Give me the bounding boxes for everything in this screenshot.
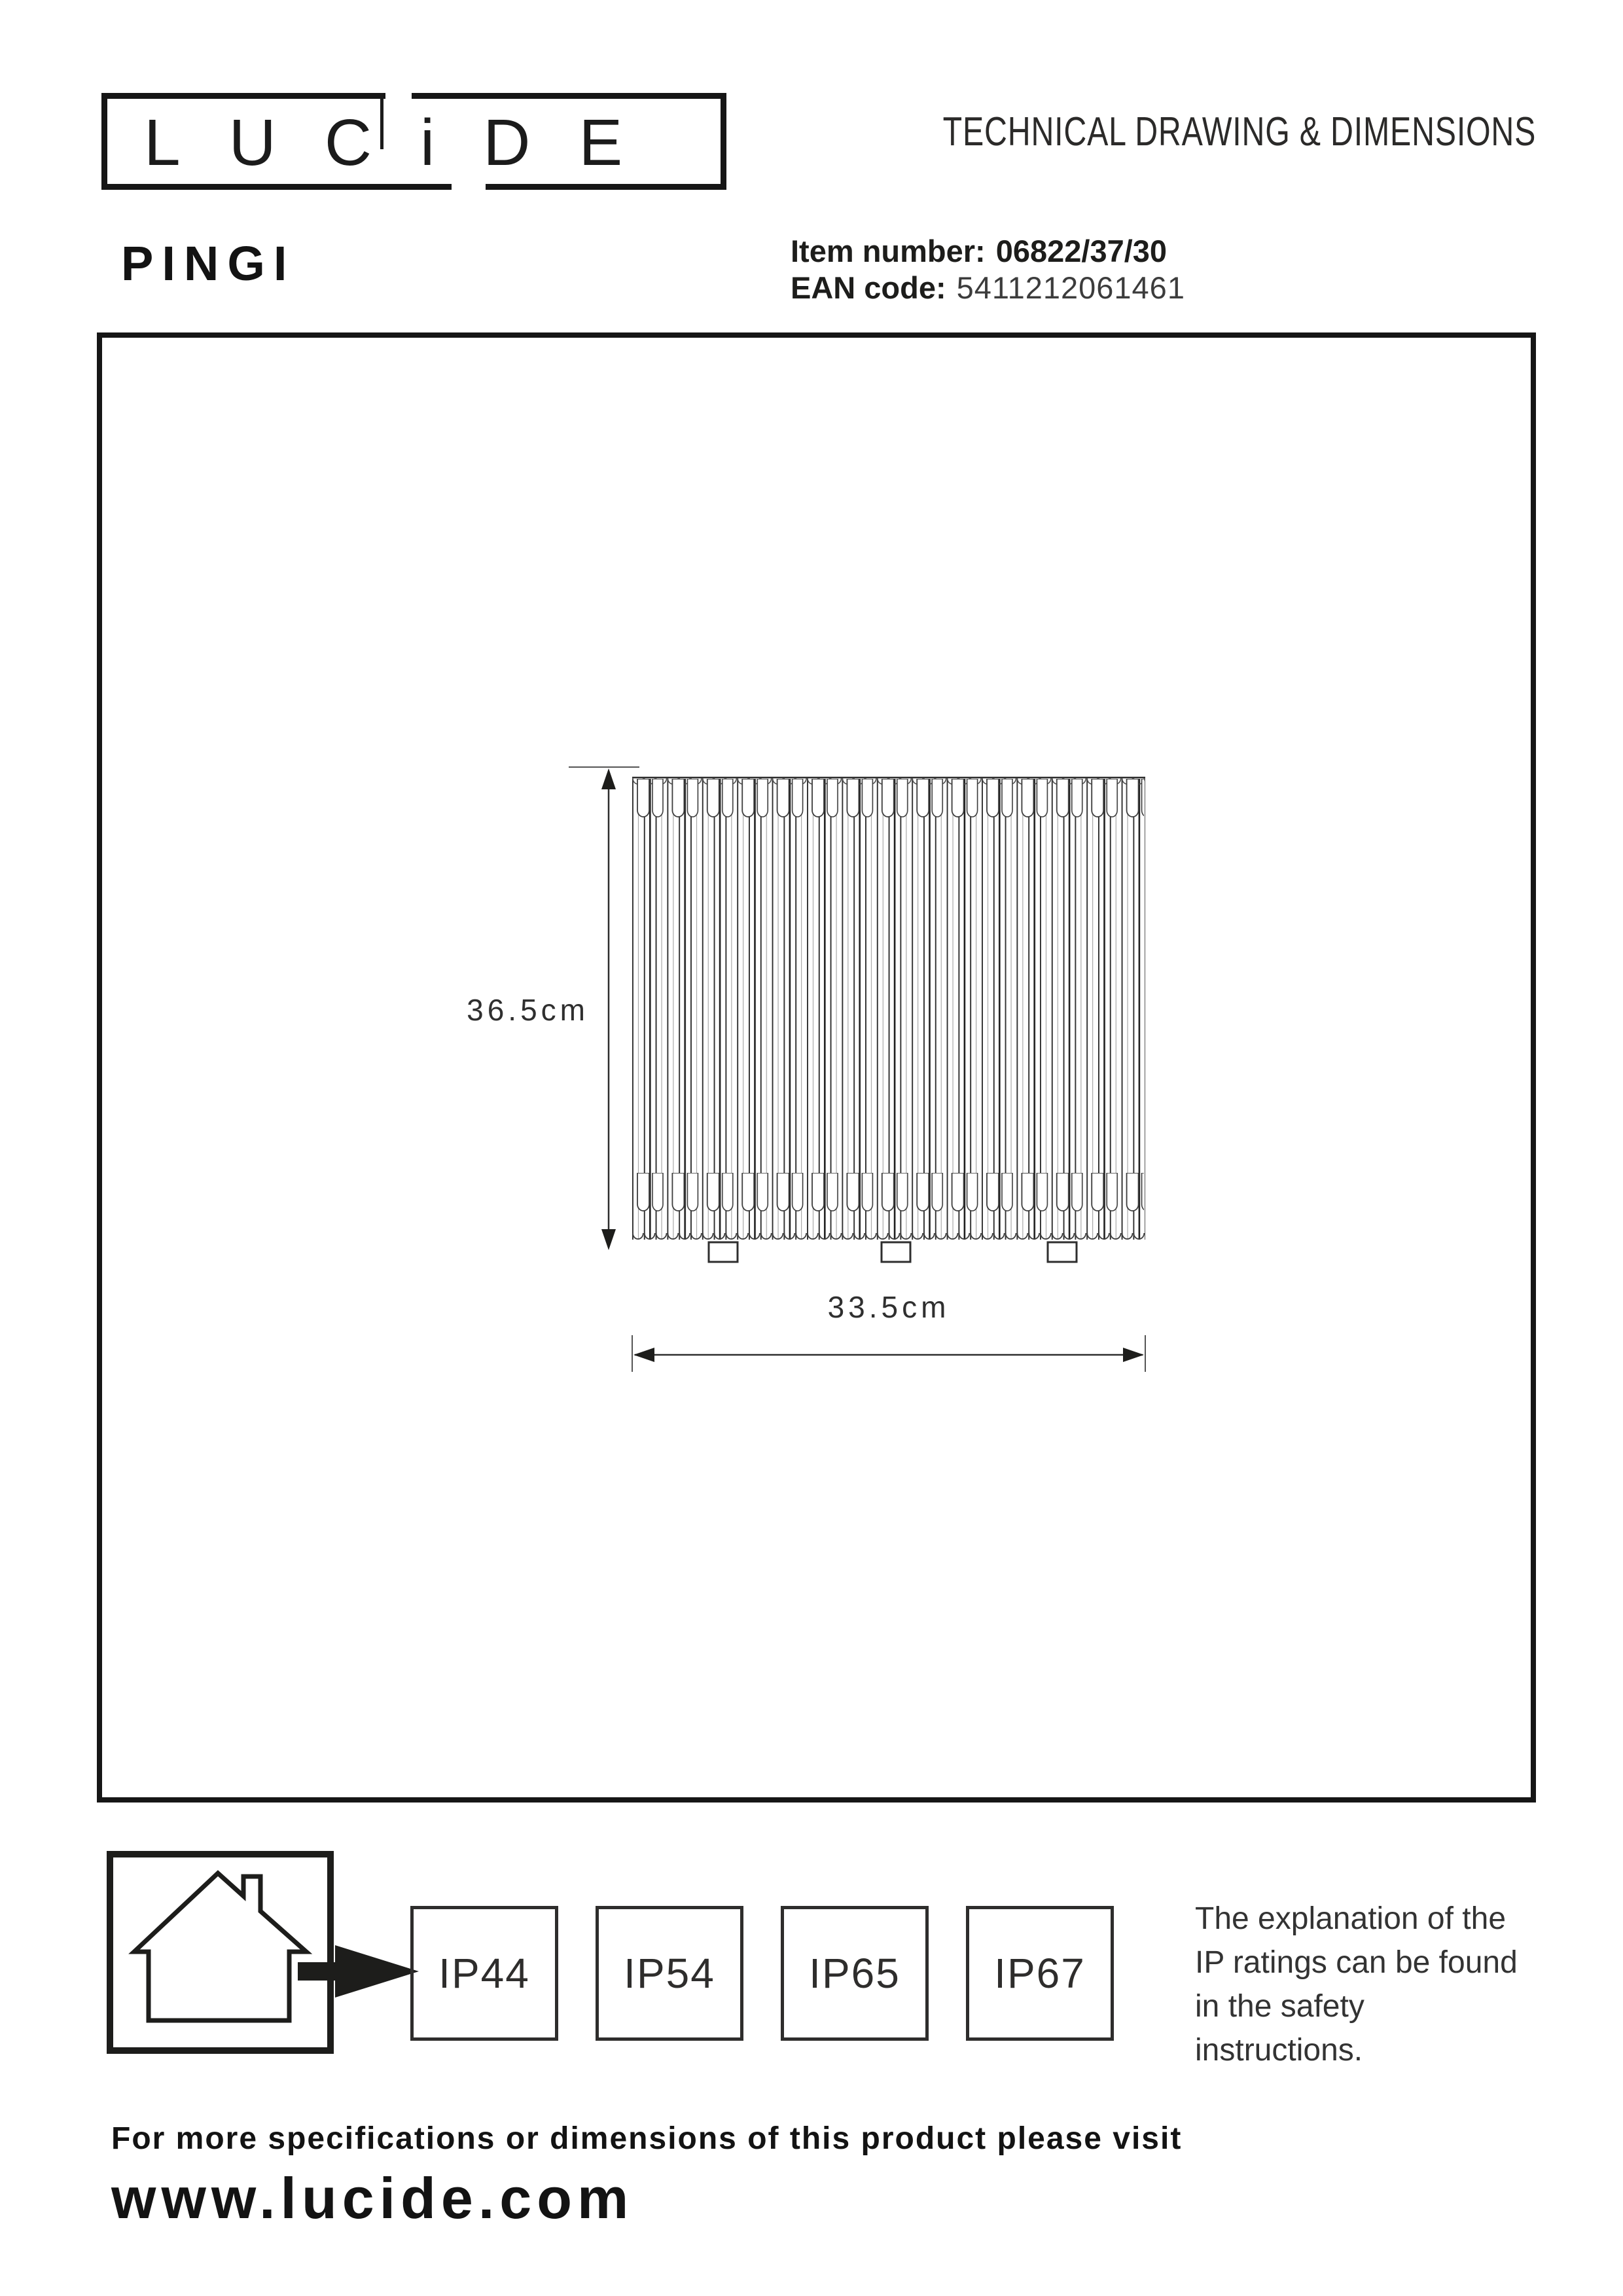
height-dimension-label: 36.5cm [412,992,589,1028]
ip-rating-badge: IP67 [966,1906,1114,2041]
item-number-label: Item number: [791,234,986,268]
ean-line: EAN code:5411212061461 [791,270,1185,306]
ip-note-line: IP ratings can be found [1195,1941,1518,1984]
footer-text: For more specifications or dimensions of… [111,2121,1182,2157]
ip-note-line: in the safety [1195,1984,1518,2028]
website-url: www.lucide.com [111,2165,633,2232]
lamp-shade-drawing [632,775,1145,1272]
house-icon [113,1857,327,2047]
ip-rating-badge: IP44 [410,1906,558,2041]
pendant-cord-icon [380,93,383,149]
ean-label: EAN code: [791,270,946,305]
ip-rating-label: IP67 [994,1949,1086,1998]
ip-rating-label: IP54 [624,1949,715,1998]
document-title: TECHNICAL DRAWING & DIMENSIONS [943,109,1536,155]
ip-note-line: The explanation of the [1195,1897,1518,1941]
product-name: PINGI [121,236,295,291]
ip-rating-badge: IP65 [781,1906,929,2041]
ip-rating-label: IP65 [809,1949,901,1998]
ip-note-line: instructions. [1195,2028,1518,2072]
item-number-line: Item number:06822/37/30 [791,233,1185,270]
ip-ratings-note: The explanation of the IP ratings can be… [1195,1897,1518,2072]
width-dimension-arrow-icon [627,1334,1150,1376]
width-dimension-label: 33.5cm [627,1289,1150,1325]
arrow-right-icon [298,1944,419,1999]
product-codes: Item number:06822/37/30 EAN code:5411212… [791,233,1185,306]
item-number-value: 06822/37/30 [996,234,1167,268]
ip-rating-label: IP44 [438,1949,530,1998]
lucide-logo: LUCiDE [144,93,671,190]
ean-value: 5411212061461 [957,270,1185,305]
ip-rating-badge: IP54 [596,1906,743,2041]
